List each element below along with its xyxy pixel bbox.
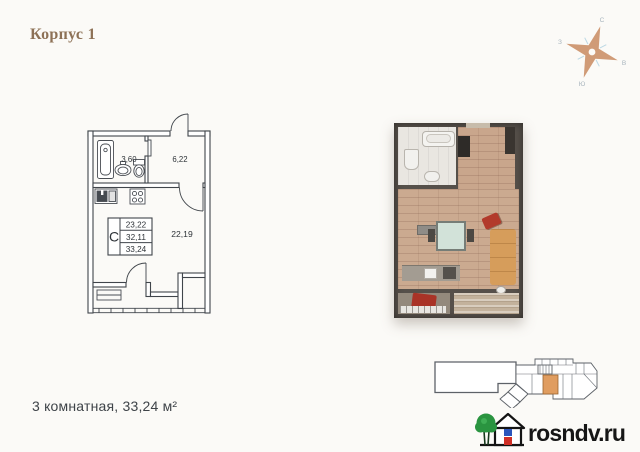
logo-tree — [475, 414, 497, 446]
render-kitchen-counter — [402, 265, 460, 281]
render-hallway — [458, 127, 515, 189]
bathtub-icon — [98, 141, 114, 179]
render-sink — [424, 171, 440, 182]
render-bathtub — [422, 131, 455, 147]
render-entrance — [466, 123, 490, 128]
render-red-chair — [481, 212, 501, 230]
listing-floorplan-image: Корпус 1 С В Ю З — [0, 0, 640, 452]
compass-label-north: С — [600, 17, 605, 24]
spec-row-1: 23,22 — [126, 221, 147, 230]
render-bench — [400, 306, 446, 313]
render-chair — [428, 229, 435, 242]
building-key-plan — [432, 352, 604, 408]
logo-window — [504, 429, 512, 436]
balcony-door — [127, 263, 147, 283]
balcony-sill — [97, 290, 121, 300]
floor-plan-2d: С 23,22 32,11 33,24 3,60 6,22 22,19 — [83, 110, 215, 316]
floor-plan-3d-render — [394, 123, 523, 318]
compass-label-east: В — [622, 60, 626, 67]
kitchen-sink-icon — [95, 189, 117, 204]
logo-house — [492, 414, 524, 445]
hallway-room-door — [180, 188, 204, 212]
render-cabinet — [458, 136, 470, 157]
logo-door — [504, 437, 512, 445]
bathroom-door — [148, 140, 151, 156]
keyplan-highlighted-unit — [543, 375, 558, 394]
render-toilet — [404, 149, 419, 170]
spec-row-2: 32,11 — [126, 233, 146, 242]
compass-center — [589, 49, 596, 56]
stove-icon — [130, 189, 145, 204]
compass-rose-icon: С В Ю З — [550, 8, 634, 92]
living-area-label: 22,19 — [171, 229, 193, 239]
render-chair — [467, 229, 474, 242]
building-title: Корпус 1 — [30, 26, 96, 44]
area-spec-box: С 23,22 32,11 33,24 — [108, 218, 152, 255]
render-table — [436, 221, 466, 251]
bathroom-area-label: 3,60 — [121, 155, 137, 164]
apartment-caption: 3 комнатная, 33,24 м² — [32, 398, 177, 414]
spec-row-3: 33,24 — [126, 245, 147, 254]
compass-label-south: Ю — [579, 81, 586, 88]
render-sofa — [490, 229, 516, 285]
hallway-area-label: 6,22 — [172, 155, 187, 164]
spec-letter: С — [109, 229, 119, 245]
render-wardrobe — [505, 127, 515, 154]
render-bathroom — [398, 127, 456, 185]
entrance-door — [171, 114, 188, 131]
keyplan-wing-bar — [435, 362, 516, 393]
brand-watermark: rosndv.ru — [528, 420, 625, 447]
render-kitchen-sink — [424, 268, 437, 279]
render-bathtub-inner — [426, 134, 451, 143]
render-balcony-left — [398, 293, 450, 314]
render-living-room — [398, 189, 519, 289]
balcony-window — [93, 308, 205, 312]
compass-label-west: З — [558, 39, 562, 46]
render-balcony-right — [454, 293, 519, 314]
house-tree-icon — [474, 409, 526, 449]
render-kitchen-stove — [443, 267, 456, 279]
